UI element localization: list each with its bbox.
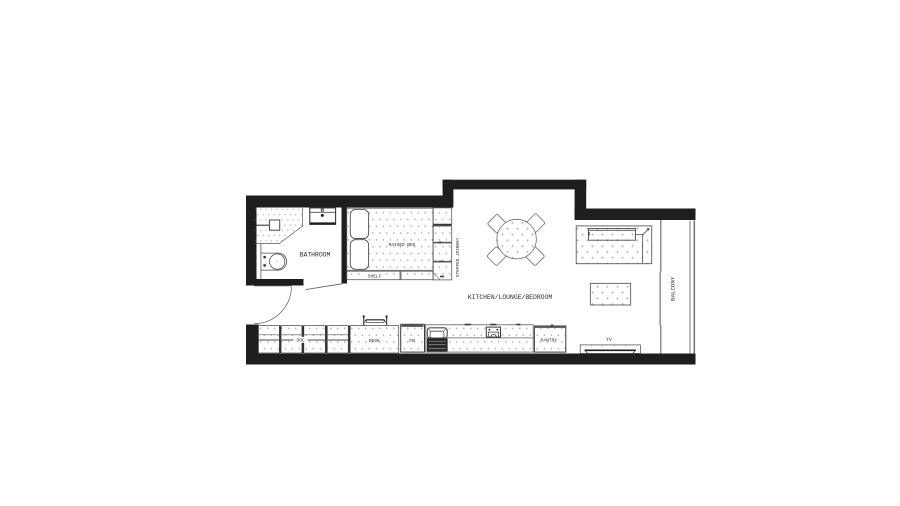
svg-text:RAISED BED: RAISED BED bbox=[389, 243, 416, 248]
svg-text:SOC: SOC bbox=[296, 338, 305, 344]
svg-text:TV: TV bbox=[606, 337, 612, 343]
svg-text:KITCHEN/LOUNGE/BEDROOM: KITCHEN/LOUNGE/BEDROOM bbox=[468, 294, 553, 301]
svg-text:BATHROOM: BATHROOM bbox=[300, 252, 331, 259]
svg-text:DESK: DESK bbox=[369, 338, 380, 344]
svg-text:STEPPED JOINERY: STEPPED JOINERY bbox=[456, 237, 461, 277]
svg-text:BALCONY: BALCONY bbox=[669, 276, 676, 301]
svg-text:SHELF: SHELF bbox=[368, 274, 382, 280]
svg-text:FR: FR bbox=[409, 338, 415, 344]
svg-text:PANTRY: PANTRY bbox=[541, 338, 558, 344]
